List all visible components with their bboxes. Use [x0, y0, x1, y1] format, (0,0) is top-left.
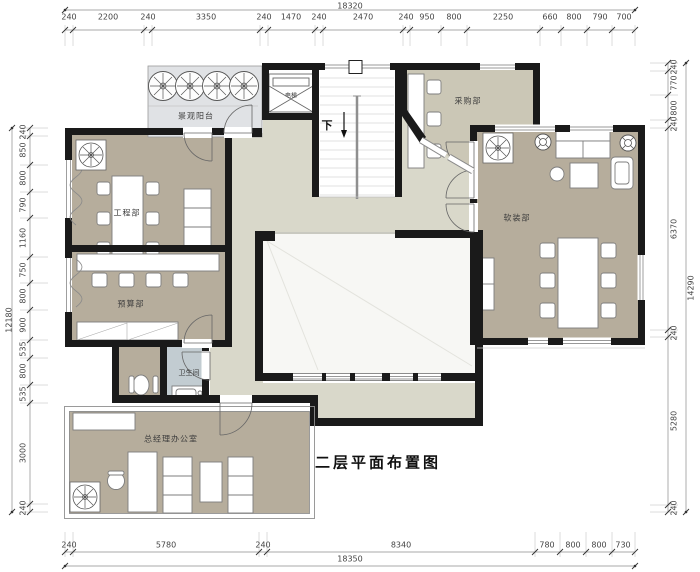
- staircase: [319, 78, 395, 199]
- ceiling-light-icon: [620, 135, 636, 151]
- plant-icon: [76, 140, 106, 170]
- dim-label: 800: [19, 363, 28, 378]
- chair: [601, 273, 616, 288]
- dim-label: 240: [19, 124, 28, 139]
- room-label-budget: 预算部: [118, 299, 145, 310]
- dim-label: 730: [615, 541, 630, 550]
- armchair-seat: [615, 162, 629, 184]
- ceiling-light-icon: [535, 134, 551, 150]
- desk: [77, 254, 219, 271]
- chair: [146, 273, 161, 287]
- dim-label: 240: [61, 541, 76, 550]
- chair: [540, 273, 555, 288]
- plant-icon: [483, 133, 513, 163]
- room-label-gm-office: 总经理办公室: [144, 434, 198, 445]
- dim-label: 800: [19, 288, 28, 303]
- dim-label: 240: [19, 500, 28, 515]
- dim-label: 1160: [19, 228, 28, 248]
- room-label-engineering: 工程部: [114, 208, 141, 219]
- dim-label: 240: [311, 13, 326, 22]
- dim-label: 800: [670, 100, 679, 115]
- room-label-elevator: 电梯: [285, 91, 297, 100]
- dim-label: 900: [19, 317, 28, 332]
- dim-label: 240: [670, 325, 679, 340]
- tree-icon: [149, 72, 178, 101]
- dim-label: 850: [19, 142, 28, 157]
- dim-label: 800: [566, 13, 581, 22]
- sink-tap: [198, 391, 202, 395]
- room-label-bathroom: 卫生间: [179, 368, 200, 378]
- column: [349, 61, 362, 74]
- room-label-soft-deco: 软装部: [504, 213, 531, 224]
- dim-label: 240: [140, 13, 155, 22]
- dim-label: 2250: [493, 13, 513, 22]
- dim-label: 700: [616, 13, 631, 22]
- stair-down-label: 下: [322, 117, 333, 133]
- dim-label: 240: [670, 500, 679, 515]
- chair: [601, 303, 616, 318]
- sofa: [228, 457, 253, 513]
- drawing-title: 二层平面布置图: [315, 452, 441, 473]
- stair-down-arrowhead: [341, 130, 347, 138]
- tree-icon: [230, 72, 259, 101]
- table: [200, 462, 222, 502]
- chair: [540, 303, 555, 318]
- dim-label: 3350: [196, 13, 216, 22]
- dim-label: 240: [398, 13, 413, 22]
- desk: [128, 452, 157, 512]
- chair: [97, 212, 110, 225]
- floor-plan-page: 景观阳台 电梯 下 采购部 软装部 工程部 预算部 卫生间 总经理办公室 二层平…: [0, 0, 700, 572]
- dim-label: 240: [61, 13, 76, 22]
- tree-icon: [203, 72, 232, 101]
- dim-label: 750: [19, 262, 28, 277]
- dim-label: 790: [19, 197, 28, 212]
- dim-label: 240: [670, 116, 679, 131]
- dim-label: 8340: [391, 541, 411, 550]
- dim-label: 18320: [337, 2, 362, 11]
- conference-table: [558, 238, 598, 328]
- dim-label: 950: [419, 13, 434, 22]
- chair: [119, 273, 134, 287]
- dim-label: 770: [670, 75, 679, 90]
- dim-label: 240: [670, 59, 679, 74]
- dim-label: 5280: [670, 411, 679, 431]
- coffee-table: [570, 163, 598, 188]
- dim-label: 5780: [156, 541, 176, 550]
- dim-label: 6370: [670, 219, 679, 239]
- dim-label: 2470: [353, 13, 373, 22]
- room-label-balcony: 景观阳台: [178, 111, 214, 122]
- chair: [173, 273, 188, 287]
- room-label-purchasing: 采购部: [455, 96, 482, 107]
- chair: [427, 80, 441, 94]
- dim-label: 800: [565, 541, 580, 550]
- chair: [146, 182, 159, 195]
- exec-chair-arm: [129, 376, 134, 393]
- dim-label: 790: [592, 13, 607, 22]
- dim-label: 780: [539, 541, 554, 550]
- dim-label: 240: [256, 13, 271, 22]
- dim-label: 240: [255, 541, 270, 550]
- dim-label: 660: [542, 13, 557, 22]
- chair: [92, 273, 107, 287]
- dim-label: 535: [19, 386, 28, 401]
- dim-label: 800: [446, 13, 461, 22]
- exec-chair: [133, 375, 149, 395]
- chair: [97, 182, 110, 195]
- tree-icon: [176, 72, 205, 101]
- dim-label: 535: [19, 341, 28, 356]
- dim-label: 2200: [98, 13, 118, 22]
- exec-chair-arm: [153, 376, 158, 393]
- chair: [601, 243, 616, 258]
- cabinet: [184, 189, 211, 246]
- sofa: [163, 457, 192, 513]
- chair: [146, 212, 159, 225]
- dim-label: 800: [591, 541, 606, 550]
- plant-icon: [70, 482, 100, 512]
- desk: [77, 322, 178, 340]
- side-table: [550, 167, 564, 181]
- cabinet: [73, 413, 135, 430]
- dim-label: 3000: [19, 443, 28, 463]
- chair: [540, 243, 555, 258]
- dim-label: 800: [19, 170, 28, 185]
- floor-plan-drawing: [0, 0, 700, 572]
- dim-label: 12180: [5, 307, 14, 332]
- dim-label: 18350: [337, 555, 362, 564]
- chair: [427, 112, 441, 126]
- dim-label: 14290: [687, 275, 696, 300]
- dim-label: 1470: [281, 13, 301, 22]
- office-chair-back: [108, 471, 124, 475]
